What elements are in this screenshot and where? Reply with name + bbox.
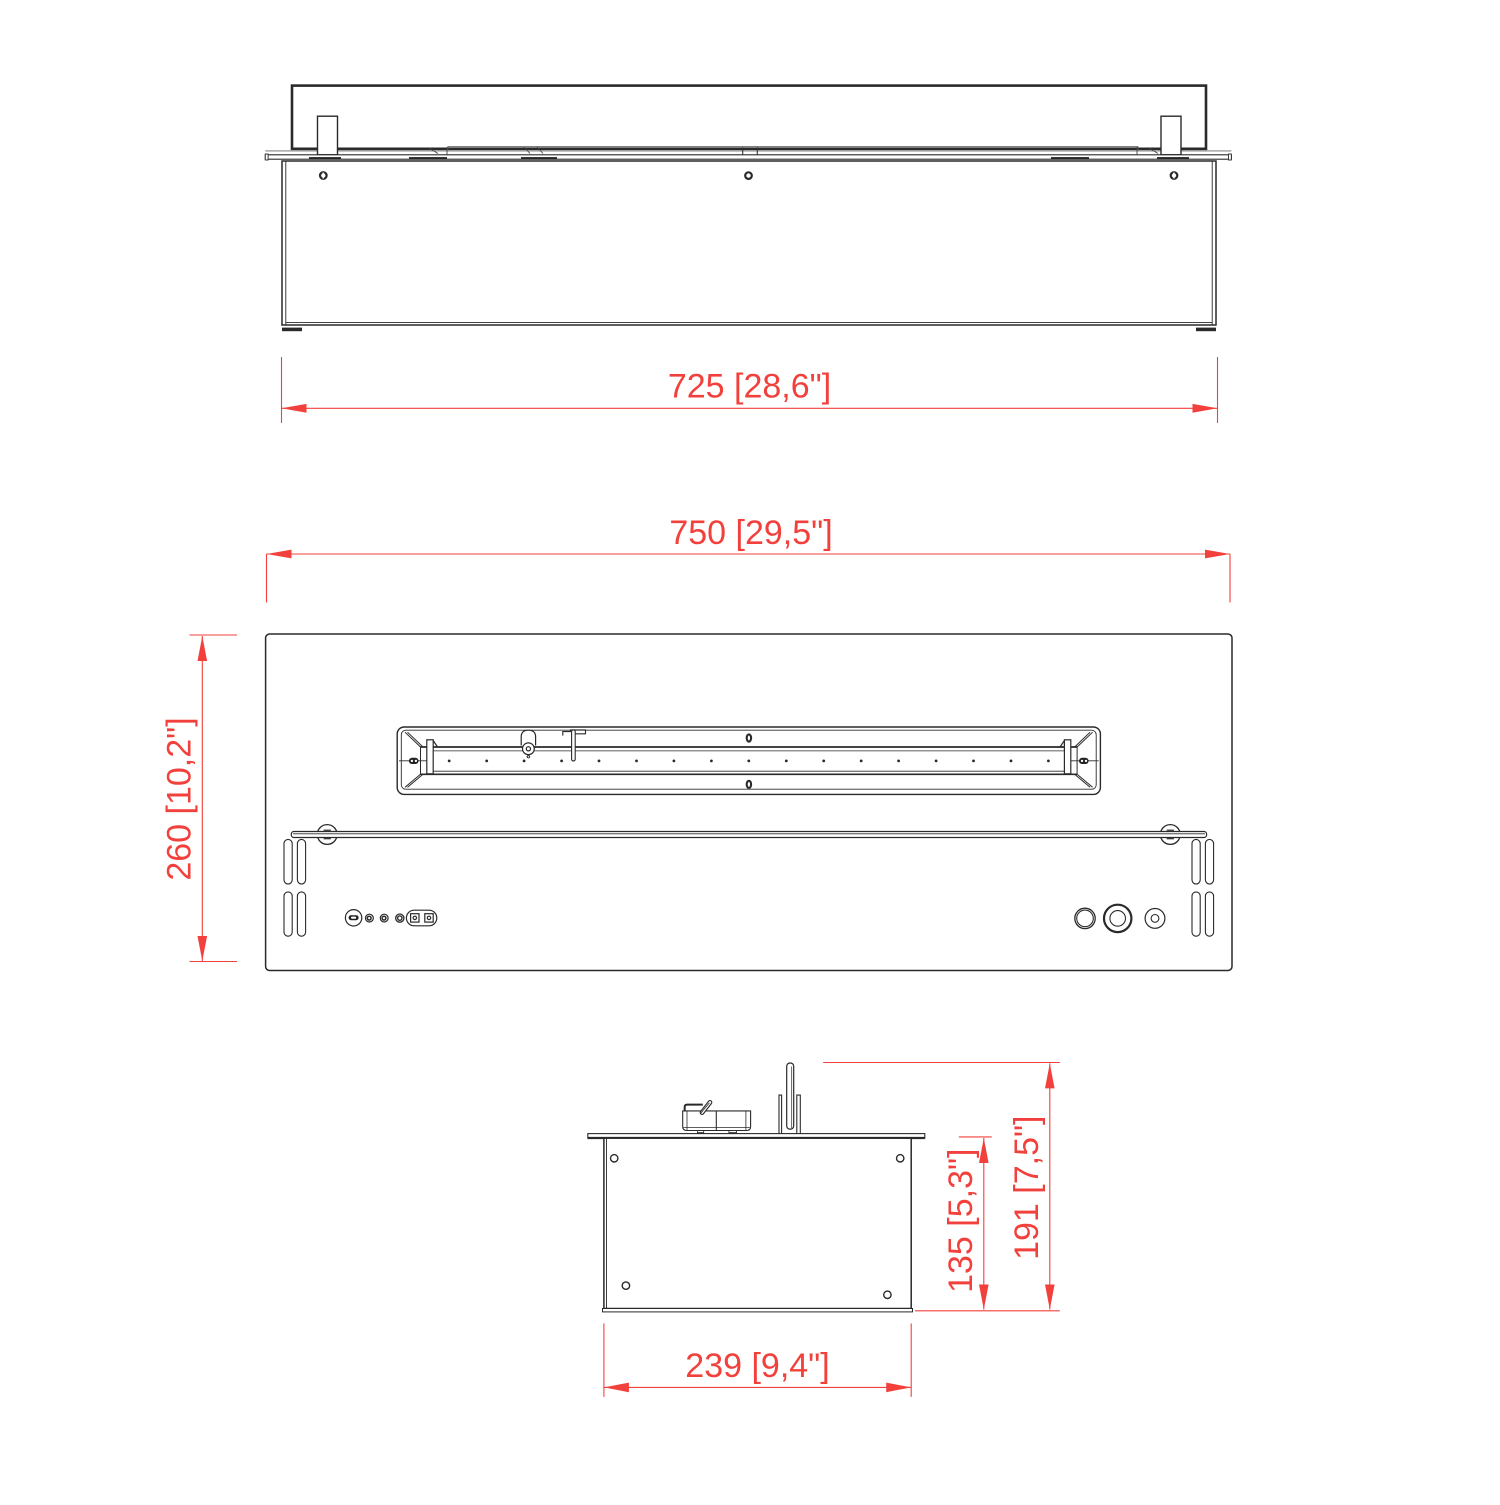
svg-text:725 [28,6"]: 725 [28,6"] <box>668 368 831 406</box>
svg-text:750 [29,5"]: 750 [29,5"] <box>669 514 832 552</box>
svg-text:135 [5,3"]: 135 [5,3"] <box>942 1148 980 1292</box>
svg-text:239 [9,4"]: 239 [9,4"] <box>685 1347 829 1385</box>
svg-text:260 [10,2"]: 260 [10,2"] <box>161 717 199 880</box>
svg-text:191 [7,5"]: 191 [7,5"] <box>1008 1115 1046 1259</box>
